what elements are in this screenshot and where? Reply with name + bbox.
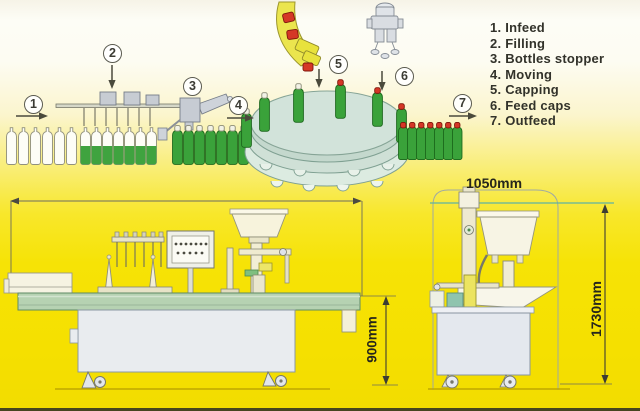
station-marker-6: 6 <box>395 67 414 86</box>
dimension-label-1730mm: 1730mm <box>588 276 604 342</box>
legend-item-filling: 2. Filling <box>490 36 604 52</box>
diagram-canvas: 1 2 3 4 5 6 7 1. Infeed 2. Filling 3. Bo… <box>0 0 640 411</box>
left-machine-drawing <box>4 198 398 389</box>
capping-chute <box>277 2 322 71</box>
height-dimension-line-1730 <box>560 204 612 384</box>
station-marker-2: 2 <box>103 44 122 63</box>
station-marker-7: 7 <box>453 94 472 113</box>
station-marker-5: 5 <box>329 55 348 74</box>
legend-item-outfeed: 7. Outfeed <box>490 113 604 129</box>
machine-drawings <box>0 175 640 411</box>
legend-item-moving: 4. Moving <box>490 67 604 83</box>
station-marker-4: 4 <box>229 96 248 115</box>
station-marker-3: 3 <box>183 77 202 96</box>
filling-station <box>56 92 180 126</box>
cap-feeder-machine <box>367 3 403 59</box>
station-marker-1: 1 <box>24 95 43 114</box>
legend-item-capping: 5. Capping <box>490 82 604 98</box>
legend: 1. Infeed 2. Filling 3. Bottles stopper … <box>490 20 604 129</box>
outfeed-bottles <box>399 122 462 159</box>
legend-item-feed-caps: 6. Feed caps <box>490 98 604 114</box>
infeed-bottles <box>7 128 77 165</box>
filling-bottles <box>81 128 157 165</box>
right-machine-drawing <box>428 187 614 390</box>
dimension-label-900mm: 900mm <box>365 310 380 370</box>
legend-item-infeed: 1. Infeed <box>490 20 604 36</box>
legend-item-bottles-stopper: 3. Bottles stopper <box>490 51 604 67</box>
stoppered-bottles <box>173 126 249 165</box>
dimension-label-1050mm: 1050mm <box>466 175 522 191</box>
